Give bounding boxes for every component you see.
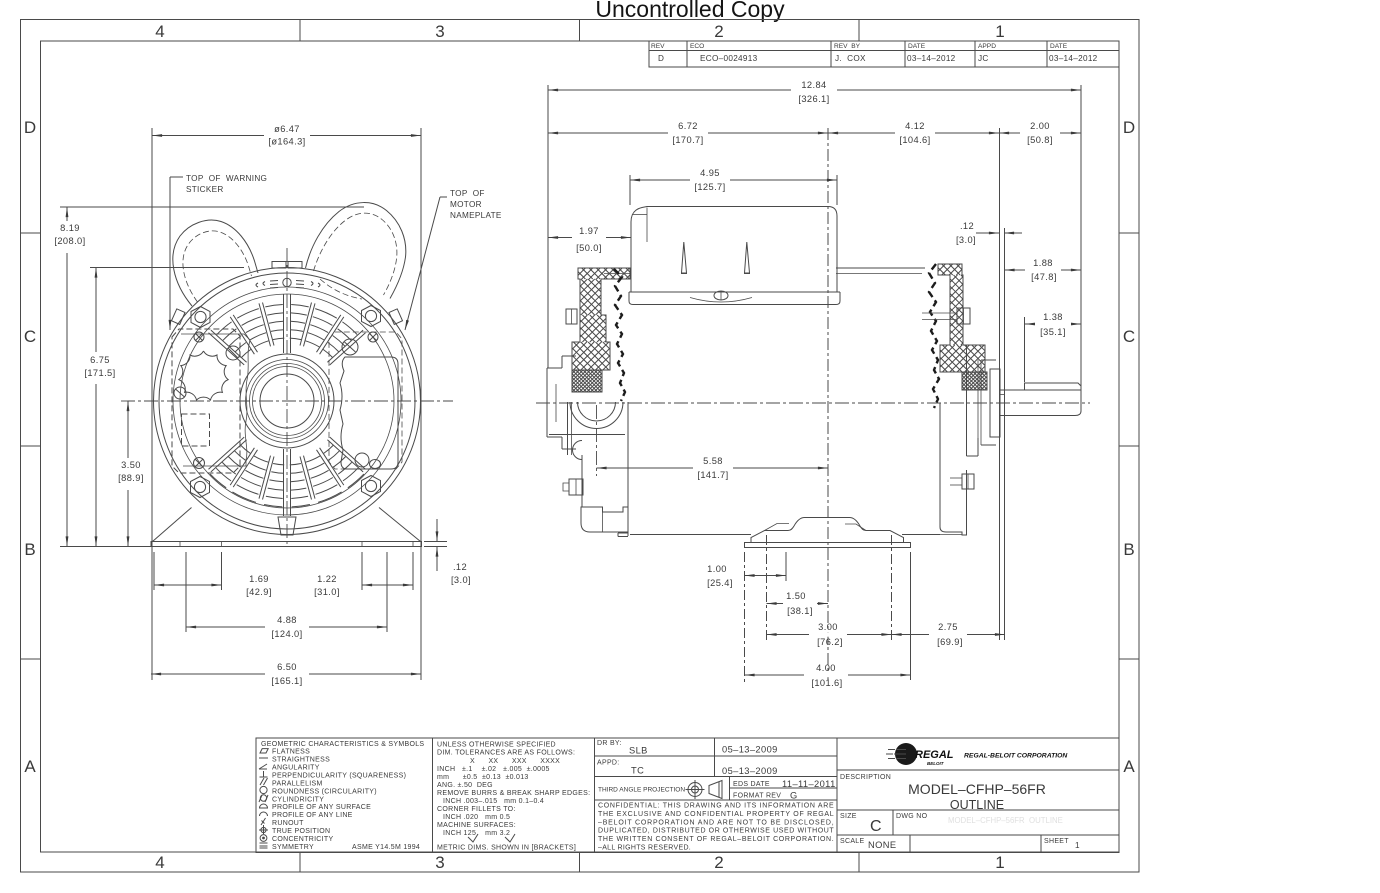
svg-text:REGAL-BELOIT CORPORATION: REGAL-BELOIT CORPORATION [964, 753, 1068, 760]
svg-text:C: C [1123, 327, 1135, 346]
svg-text:[101.6]: [101.6] [811, 678, 842, 688]
svg-text:2: 2 [714, 853, 723, 872]
svg-text:ø6.47: ø6.47 [274, 124, 300, 134]
svg-text:8.19: 8.19 [60, 223, 80, 233]
svg-text:OUTLINE: OUTLINE [950, 798, 1004, 812]
svg-text:TC: TC [631, 766, 644, 776]
svg-text:4: 4 [155, 22, 164, 41]
svg-text:INCH .003–.015 mm 0.1–0.4: INCH .003–.015 mm 0.1–0.4 [443, 798, 544, 805]
svg-text:–BELOIT CORPORATION AND ARE: –BELOIT CORPORATION AND ARE NOT TO BE DI… [598, 819, 834, 826]
svg-text:J. COX: J. COX [835, 54, 866, 63]
svg-text:2: 2 [714, 22, 723, 41]
svg-text:MODEL–CFHP–56FR: MODEL–CFHP–56FR [908, 781, 1046, 797]
svg-text:[31.0]: [31.0] [314, 587, 340, 597]
svg-text:[76.2]: [76.2] [817, 637, 843, 647]
svg-text:4.00: 4.00 [816, 663, 836, 673]
svg-text:1: 1 [995, 22, 1004, 41]
svg-text:1.38: 1.38 [1043, 312, 1063, 322]
svg-text:[3.0]: [3.0] [451, 575, 471, 585]
svg-text:4.88: 4.88 [277, 615, 297, 625]
svg-text:UNLESS OTHERWISE SPECIFIED: UNLESS OTHERWISE SPECIFIED [437, 742, 556, 749]
svg-text:DATE: DATE [908, 43, 926, 50]
svg-text:NAMEPLATE: NAMEPLATE [450, 211, 502, 220]
svg-text:03–14–2012: 03–14–2012 [907, 54, 956, 63]
svg-text:[125.7]: [125.7] [694, 182, 725, 192]
svg-text:[25.4]: [25.4] [707, 578, 733, 588]
svg-text:SLB: SLB [629, 746, 648, 756]
svg-text:1.69: 1.69 [249, 574, 269, 584]
svg-text:A: A [24, 757, 36, 776]
svg-text:PROFILE OF ANY SURFACE: PROFILE OF ANY SURFACE [272, 804, 371, 811]
svg-text:ANGULARITY: ANGULARITY [272, 765, 320, 772]
svg-text:2.75: 2.75 [938, 622, 958, 632]
svg-text:ASME Y14.5M 1994: ASME Y14.5M 1994 [352, 844, 420, 851]
svg-text:D: D [1123, 118, 1135, 137]
svg-text:DUPLICATED, DISTRIBUTED OR: DUPLICATED, DISTRIBUTED OR OTHERWISE USE… [598, 828, 834, 835]
svg-text:1.22: 1.22 [317, 574, 337, 584]
svg-text:RUNOUT: RUNOUT [272, 820, 304, 827]
svg-text:STRAIGHTNESS: STRAIGHTNESS [272, 757, 330, 764]
svg-text:BELOIT: BELOIT [927, 761, 945, 766]
svg-text:INCH .020 mm 0.5: INCH .020 mm 0.5 [443, 814, 510, 821]
svg-text:4: 4 [155, 853, 164, 872]
svg-text:TRUE POSITION: TRUE POSITION [272, 828, 330, 835]
svg-text:[47.8]: [47.8] [1031, 272, 1057, 282]
svg-text:4.12: 4.12 [905, 121, 925, 131]
svg-text:1: 1 [995, 853, 1004, 872]
svg-text:[50.8]: [50.8] [1027, 135, 1053, 145]
svg-text:[170.7]: [170.7] [672, 135, 703, 145]
svg-text:MODEL–CFHP–56FR OUTLINE: MODEL–CFHP–56FR OUTLINE [948, 816, 1063, 825]
svg-text:CORNER FILLETS TO:: CORNER FILLETS TO: [437, 806, 516, 813]
svg-text:REGAL: REGAL [915, 749, 954, 761]
svg-text:[42.9]: [42.9] [246, 587, 272, 597]
svg-text:6.50: 6.50 [277, 662, 297, 672]
svg-text:METRIC DIMS. SHOWN IN [BRA: METRIC DIMS. SHOWN IN [BRACKETS] [437, 845, 576, 852]
svg-text:DATE: DATE [1050, 43, 1068, 50]
svg-text:EDS DATE: EDS DATE [733, 781, 770, 788]
svg-text:mm ±0.5 ±0.13 ±0.013: mm ±0.5 ±0.13 ±0.013 [437, 774, 529, 781]
svg-text:INCH ±.1 ±.02 ±.005 ±.: INCH ±.1 ±.02 ±.005 ±.0005 [437, 766, 550, 773]
svg-text:CONCENTRICITY: CONCENTRICITY [272, 836, 333, 843]
svg-text:3: 3 [435, 22, 444, 41]
svg-text:[171.5]: [171.5] [84, 368, 115, 378]
svg-text:05–13–2009: 05–13–2009 [722, 766, 778, 776]
svg-text:SCALE: SCALE [840, 838, 864, 845]
svg-text:6.72: 6.72 [678, 121, 698, 131]
svg-text:ECO–0024913: ECO–0024913 [700, 54, 758, 63]
svg-text:APPD: APPD [978, 43, 996, 50]
svg-text:[69.9]: [69.9] [937, 637, 963, 647]
svg-text:12.84: 12.84 [801, 80, 826, 90]
svg-text:[88.9]: [88.9] [118, 473, 144, 483]
svg-text:C: C [870, 818, 882, 835]
svg-text:03–14–2012: 03–14–2012 [1049, 54, 1098, 63]
svg-text:MOTOR: MOTOR [450, 200, 482, 209]
svg-text:PARALLELISM: PARALLELISM [272, 780, 323, 787]
svg-text:4.95: 4.95 [700, 168, 720, 178]
svg-text:[124.0]: [124.0] [271, 629, 302, 639]
svg-text:REV BY: REV BY [834, 43, 861, 50]
svg-text:TOP OF: TOP OF [450, 189, 485, 198]
svg-text:[38.1]: [38.1] [787, 606, 813, 616]
svg-text:[165.1]: [165.1] [271, 676, 302, 686]
svg-text:PROFILE OF ANY LINE: PROFILE OF ANY LINE [272, 812, 353, 819]
svg-text:6.75: 6.75 [90, 355, 110, 365]
svg-text:FORMAT REV: FORMAT REV [733, 793, 781, 800]
svg-text:–ALL RIGHTS RESERVED.: –ALL RIGHTS RESERVED. [598, 845, 691, 852]
svg-text:B: B [1123, 540, 1134, 559]
svg-text:APPD:: APPD: [597, 760, 620, 767]
svg-text:1.00: 1.00 [707, 564, 727, 574]
svg-text:Uncontrolled Copy: Uncontrolled Copy [595, 0, 785, 22]
svg-text:[208.0]: [208.0] [54, 236, 85, 246]
svg-text:A: A [1123, 757, 1135, 776]
svg-text:ANG. ±.50 DEG: ANG. ±.50 DEG [437, 782, 493, 789]
svg-text:X XX XXX XXXX: X XX XXX XXXX [470, 758, 560, 765]
svg-text:[326.1]: [326.1] [798, 94, 829, 104]
svg-text:G: G [790, 791, 798, 801]
svg-text:THE WRITTEN CONSENT OF REG: THE WRITTEN CONSENT OF REGAL–BELOIT CORP… [598, 836, 834, 843]
svg-text:C: C [24, 327, 36, 346]
svg-text:FLATNESS: FLATNESS [272, 749, 310, 756]
svg-text:D: D [24, 118, 36, 137]
svg-text:DESCRIPTION: DESCRIPTION [840, 774, 891, 781]
svg-text:CYLINDRICITY: CYLINDRICITY [272, 796, 324, 803]
svg-text:B: B [24, 540, 35, 559]
svg-text:5.58: 5.58 [703, 456, 723, 466]
svg-text:REMOVE BURRS & BREAK SHARP: REMOVE BURRS & BREAK SHARP EDGES: [437, 790, 590, 797]
svg-text:DR BY:: DR BY: [597, 740, 622, 747]
svg-text:JC: JC [978, 54, 989, 63]
svg-text:NONE: NONE [868, 840, 896, 850]
svg-text:3.50: 3.50 [121, 460, 141, 470]
svg-text:PERPENDICULARITY (SQUARENESS): PERPENDICULARITY (SQUARENESS) [272, 773, 406, 780]
svg-text:CONFIDENTIAL: THIS DRAWING: CONFIDENTIAL: THIS DRAWING AND ITS INFOR… [598, 803, 834, 810]
svg-text:SHEET: SHEET [1044, 838, 1069, 845]
svg-text:[ø164.3]: [ø164.3] [268, 137, 305, 147]
svg-text:[104.6]: [104.6] [899, 135, 930, 145]
svg-text:THE EXCLUSIVE AND CONFIDENT: THE EXCLUSIVE AND CONFIDENTIAL PROPERTY … [598, 811, 834, 818]
svg-text:2.00: 2.00 [1030, 121, 1050, 131]
svg-text:STICKER: STICKER [186, 185, 224, 194]
svg-text:[141.7]: [141.7] [697, 470, 728, 480]
svg-text:REV: REV [651, 43, 665, 50]
svg-text:SYMMETRY: SYMMETRY [272, 844, 314, 851]
svg-text:THIRD ANGLE PROJECTION: THIRD ANGLE PROJECTION [598, 787, 685, 794]
svg-text:[50.0]: [50.0] [576, 243, 602, 253]
svg-text:1.97: 1.97 [579, 226, 599, 236]
svg-text:TOP OF WARNING: TOP OF WARNING [186, 174, 267, 183]
svg-text:DIM. TOLERANCES ARE AS FOL: DIM. TOLERANCES ARE AS FOLLOWS: [437, 750, 575, 757]
svg-text:ROUNDNESS (CIRCULARITY): ROUNDNESS (CIRCULARITY) [272, 788, 377, 795]
svg-text:ECO: ECO [690, 43, 704, 50]
svg-text:05–13–2009: 05–13–2009 [722, 745, 778, 755]
svg-text:SIZE: SIZE [840, 813, 857, 820]
svg-text:.12: .12 [453, 562, 467, 572]
svg-text:3.00: 3.00 [818, 622, 838, 632]
svg-text:11–11–2011: 11–11–2011 [782, 779, 836, 789]
svg-text:D: D [658, 54, 664, 63]
svg-text:MACHINE SURFACES:: MACHINE SURFACES: [437, 822, 516, 829]
svg-text:[35.1]: [35.1] [1040, 327, 1066, 337]
svg-text:3: 3 [435, 853, 444, 872]
svg-text:1.50: 1.50 [786, 591, 806, 601]
svg-text:DWG NO: DWG NO [896, 813, 928, 820]
svg-text:1: 1 [1075, 841, 1080, 850]
svg-text:.12: .12 [960, 221, 974, 231]
svg-text:1.88: 1.88 [1033, 258, 1053, 268]
svg-text:GEOMETRIC CHARACTERISTICS &: GEOMETRIC CHARACTERISTICS & SYMBOLS [261, 741, 424, 748]
svg-text:[3.0]: [3.0] [956, 235, 976, 245]
